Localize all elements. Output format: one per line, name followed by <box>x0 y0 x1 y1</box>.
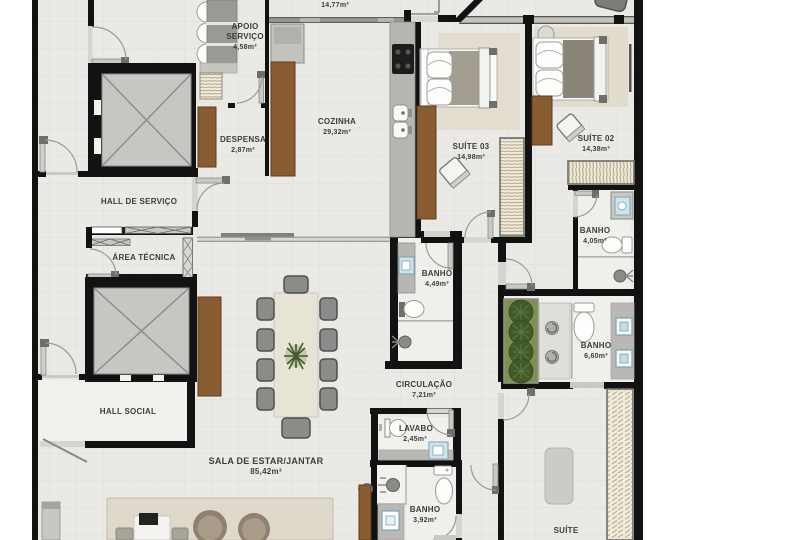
svg-text:HALL SOCIAL: HALL SOCIAL <box>100 407 156 416</box>
svg-text:SUÍTE: SUÍTE <box>554 526 579 535</box>
svg-text:ÁREA TÉCNICA: ÁREA TÉCNICA <box>112 253 175 262</box>
svg-text:4,58m³: 4,58m³ <box>233 44 257 51</box>
svg-text:SUÍTE 02: SUÍTE 02 <box>578 134 615 143</box>
svg-text:BANHO: BANHO <box>422 269 453 278</box>
svg-text:BANHO: BANHO <box>410 505 441 514</box>
svg-text:14,77m³: 14,77m³ <box>321 2 349 9</box>
svg-text:COZINHA: COZINHA <box>318 117 356 126</box>
svg-text:SERVIÇO: SERVIÇO <box>226 32 264 41</box>
svg-text:SUÍTE 03: SUÍTE 03 <box>453 142 490 151</box>
svg-text:4,05m³: 4,05m³ <box>583 238 607 245</box>
svg-text:LAVABO: LAVABO <box>399 424 433 433</box>
svg-text:2,45m³: 2,45m³ <box>403 436 427 443</box>
svg-text:HALL DE SERVIÇO: HALL DE SERVIÇO <box>101 197 177 206</box>
svg-text:85,42m³: 85,42m³ <box>250 467 282 476</box>
svg-text:14,98m³: 14,98m³ <box>457 154 485 161</box>
svg-text:DESPENSA: DESPENSA <box>220 135 266 144</box>
svg-text:BANHO: BANHO <box>581 341 612 350</box>
svg-text:APOIO: APOIO <box>231 22 258 31</box>
svg-text:7,21m³: 7,21m³ <box>412 392 436 399</box>
svg-text:2,87m³: 2,87m³ <box>231 147 255 154</box>
svg-text:4,49m³: 4,49m³ <box>425 281 449 288</box>
svg-text:CIRCULAÇÃO: CIRCULAÇÃO <box>396 380 452 389</box>
svg-text:3,92m³: 3,92m³ <box>413 517 437 524</box>
svg-text:29,32m³: 29,32m³ <box>323 129 351 136</box>
svg-text:14,38m³: 14,38m³ <box>582 146 610 153</box>
svg-text:6,60m³: 6,60m³ <box>584 353 608 360</box>
svg-text:SALA DE ESTAR/JANTAR: SALA DE ESTAR/JANTAR <box>209 456 324 466</box>
svg-text:BANHO: BANHO <box>580 226 611 235</box>
